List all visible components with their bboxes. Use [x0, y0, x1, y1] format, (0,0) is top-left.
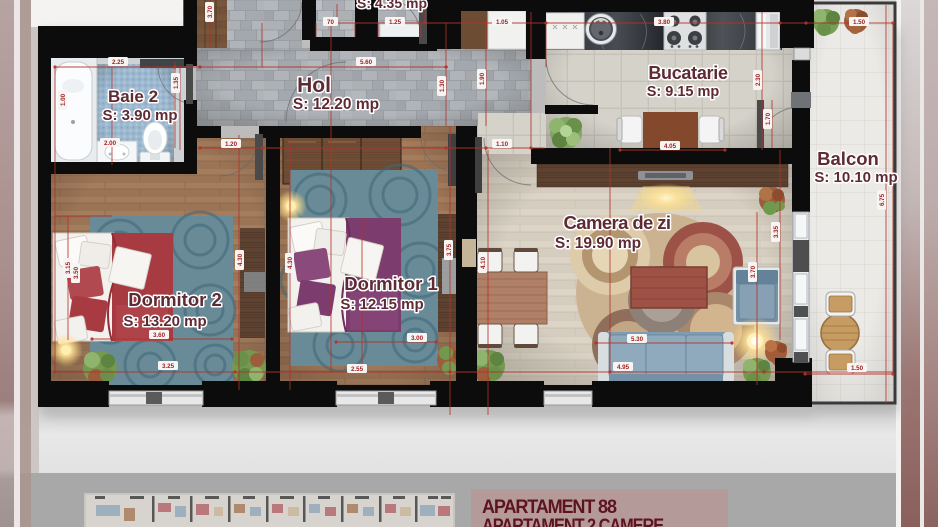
svg-text:4.05: 4.05	[664, 143, 677, 150]
svg-text:Bucatarie: Bucatarie	[648, 63, 728, 83]
svg-text:Hol: Hol	[297, 74, 331, 97]
svg-text:S: 9.15 mp: S: 9.15 mp	[647, 84, 720, 100]
svg-text:1.25: 1.25	[389, 19, 402, 26]
svg-text:Camera de zi: Camera de zi	[564, 212, 671, 233]
svg-text:6.75: 6.75	[879, 193, 886, 206]
svg-text:3.00: 3.00	[411, 335, 424, 342]
svg-text:S: 4.35 mp: S: 4.35 mp	[357, 0, 427, 11]
svg-text:4.10: 4.10	[480, 256, 487, 269]
svg-text:Dormitor 1: Dormitor 1	[344, 273, 438, 294]
svg-text:APARTAMENT 2 CAMERE: APARTAMENT 2 CAMERE	[482, 515, 664, 527]
svg-text:2.30: 2.30	[755, 73, 762, 86]
svg-text:1.10: 1.10	[496, 141, 509, 148]
svg-text:5.60: 5.60	[360, 59, 373, 66]
svg-text:1.00: 1.00	[60, 93, 67, 106]
svg-text:Balcon: Balcon	[817, 148, 879, 169]
svg-text:3.35: 3.35	[773, 225, 780, 238]
svg-text:2.25: 2.25	[112, 59, 125, 66]
svg-text:1.05: 1.05	[496, 19, 509, 26]
svg-text:S: 10.10 mp: S: 10.10 mp	[814, 169, 897, 186]
svg-text:S: 13.20 mp: S: 13.20 mp	[123, 313, 206, 330]
svg-text:1.70: 1.70	[765, 112, 772, 125]
svg-text:3.60: 3.60	[153, 332, 166, 339]
svg-text:1.20: 1.20	[225, 141, 238, 148]
svg-text:2.00: 2.00	[104, 140, 117, 147]
svg-text:3.50: 3.50	[73, 266, 80, 279]
svg-text:3.15: 3.15	[65, 261, 72, 274]
svg-text:S: 3.90 mp: S: 3.90 mp	[102, 107, 177, 124]
svg-text:S: 12.20 mp: S: 12.20 mp	[293, 96, 379, 113]
svg-text:4.30: 4.30	[287, 256, 294, 269]
svg-text:Baie 2: Baie 2	[108, 87, 158, 106]
svg-text:5.30: 5.30	[631, 336, 644, 343]
svg-text:4.30: 4.30	[237, 253, 244, 266]
svg-text:3.75: 3.75	[446, 243, 453, 256]
svg-text:Dormitor 2: Dormitor 2	[128, 289, 222, 310]
svg-text:S: 19.90 mp: S: 19.90 mp	[555, 235, 641, 252]
svg-text:1.50: 1.50	[851, 365, 864, 372]
svg-text:1.50: 1.50	[853, 19, 866, 26]
svg-text:S: 12.15 mp: S: 12.15 mp	[340, 296, 423, 313]
svg-text:1.35: 1.35	[173, 76, 180, 89]
svg-text:1.90: 1.90	[479, 72, 486, 85]
svg-text:1.30: 1.30	[439, 79, 446, 92]
svg-text:70: 70	[327, 19, 334, 26]
svg-text:4.95: 4.95	[617, 364, 630, 371]
svg-text:3.80: 3.80	[658, 19, 671, 26]
svg-text:3.70: 3.70	[750, 265, 757, 278]
svg-text:2.55: 2.55	[351, 366, 364, 373]
svg-text:3.25: 3.25	[162, 363, 175, 370]
svg-text:3.70: 3.70	[207, 5, 214, 18]
